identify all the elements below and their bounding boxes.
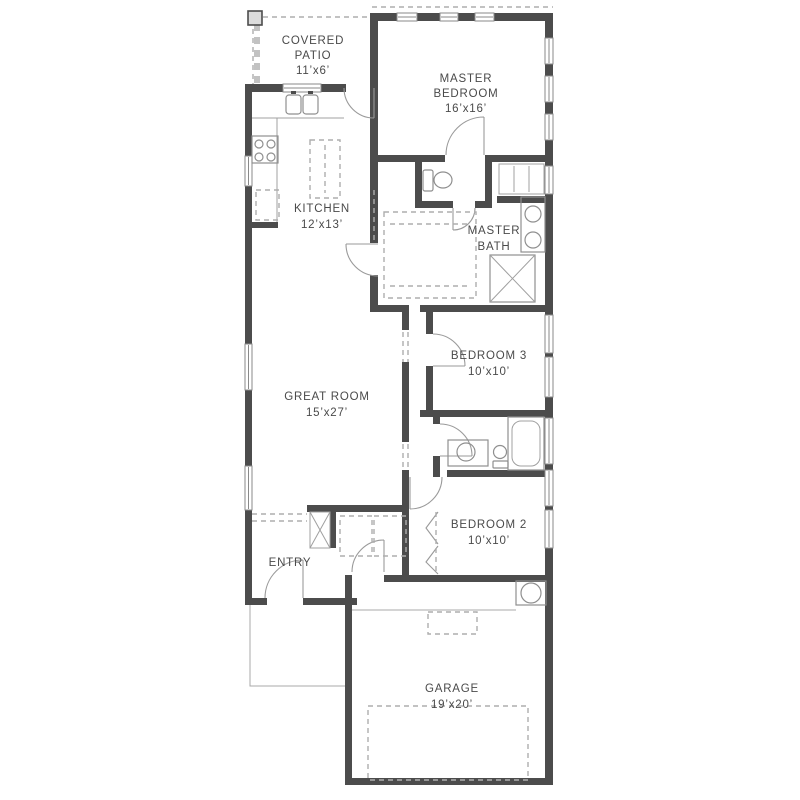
kitchen-cabinet-dashed xyxy=(256,190,279,220)
window xyxy=(545,76,553,102)
patio-door xyxy=(344,88,374,118)
room-label-bedroom-3: BEDROOM 3 10’x10’ xyxy=(451,350,527,378)
label-line: ENTRY xyxy=(269,557,312,569)
window xyxy=(545,114,553,140)
window xyxy=(245,344,252,390)
label-line: MASTER xyxy=(468,225,521,237)
room-label-garage: GARAGE 19’x20’ xyxy=(425,683,479,711)
room-label-bedroom-2: BEDROOM 2 10’x10’ xyxy=(451,519,527,547)
kitchen-island xyxy=(310,140,340,198)
toilet-icon xyxy=(423,170,452,191)
bathtub-icon xyxy=(508,417,544,470)
garage-door-dashed xyxy=(368,706,528,780)
master-hall-door xyxy=(346,244,378,276)
window xyxy=(475,13,494,21)
front-porch-outline xyxy=(250,605,345,686)
label-line: 15’x27’ xyxy=(306,407,348,419)
master-suite-fixtures xyxy=(384,164,545,302)
room-label-entry: ENTRY xyxy=(269,557,312,569)
label-line: 16’x16’ xyxy=(445,103,487,115)
garage-fixtures xyxy=(250,581,546,780)
room-label-kitchen: KITCHEN 12’x13’ xyxy=(294,203,350,231)
master-bedroom-door xyxy=(446,117,484,155)
dryer-dashed xyxy=(374,516,406,556)
hall-bath-fixtures xyxy=(448,417,544,470)
floor-plan-drawing: COVERED PATIO 11’x6’ MASTER BEDROOM 16’x… xyxy=(0,0,800,800)
label-line: 12’x13’ xyxy=(301,219,343,231)
label-line: BEDROOM 2 xyxy=(451,519,527,531)
window xyxy=(283,84,321,92)
label-line: BATH xyxy=(477,241,510,253)
stove-icon xyxy=(252,136,278,163)
label-line: BEDROOM xyxy=(433,88,498,100)
linen-shelves xyxy=(499,164,544,194)
label-line: KITCHEN xyxy=(294,203,350,215)
label-line: 10’x10’ xyxy=(468,366,510,378)
label-line: 10’x10’ xyxy=(468,535,510,547)
window xyxy=(545,38,553,64)
window xyxy=(245,156,252,186)
window xyxy=(545,510,553,548)
window xyxy=(545,357,553,397)
window xyxy=(545,470,553,506)
label-line: 11’x6’ xyxy=(296,65,330,77)
label-line: BEDROOM 3 xyxy=(451,350,527,362)
kitchen-sink-icon xyxy=(286,91,318,114)
window xyxy=(545,418,553,464)
entry-mud-fixtures xyxy=(310,512,406,556)
window xyxy=(545,166,553,194)
washer-dashed xyxy=(340,516,372,556)
bedroom-2-door xyxy=(410,477,442,509)
label-line: GARAGE xyxy=(425,683,479,695)
label-line: PATIO xyxy=(295,50,332,62)
room-label-master-bedroom: MASTER BEDROOM 16’x16’ xyxy=(433,73,498,115)
water-heater-icon xyxy=(516,581,546,605)
window xyxy=(440,13,458,21)
coat-closet xyxy=(310,512,330,548)
toilet-icon xyxy=(493,446,508,469)
room-label-covered-patio: COVERED PATIO 11’x6’ xyxy=(282,35,344,77)
master-closet xyxy=(384,212,476,298)
attic-access-dashed xyxy=(428,612,477,634)
window xyxy=(245,466,252,510)
label-line: COVERED xyxy=(282,35,344,47)
label-line: 19’x20’ xyxy=(431,699,473,711)
patio-post xyxy=(248,11,262,25)
master-vanity xyxy=(521,197,545,252)
window xyxy=(397,13,417,21)
bath-2-vanity xyxy=(448,440,488,466)
label-line: GREAT ROOM xyxy=(284,391,370,403)
window xyxy=(545,315,553,353)
floor-plan: COVERED PATIO 11’x6’ MASTER BEDROOM 16’x… xyxy=(0,0,800,800)
room-label-great-room: GREAT ROOM 15’x27’ xyxy=(284,391,370,419)
shower-icon xyxy=(490,255,535,302)
label-line: MASTER xyxy=(440,73,493,85)
